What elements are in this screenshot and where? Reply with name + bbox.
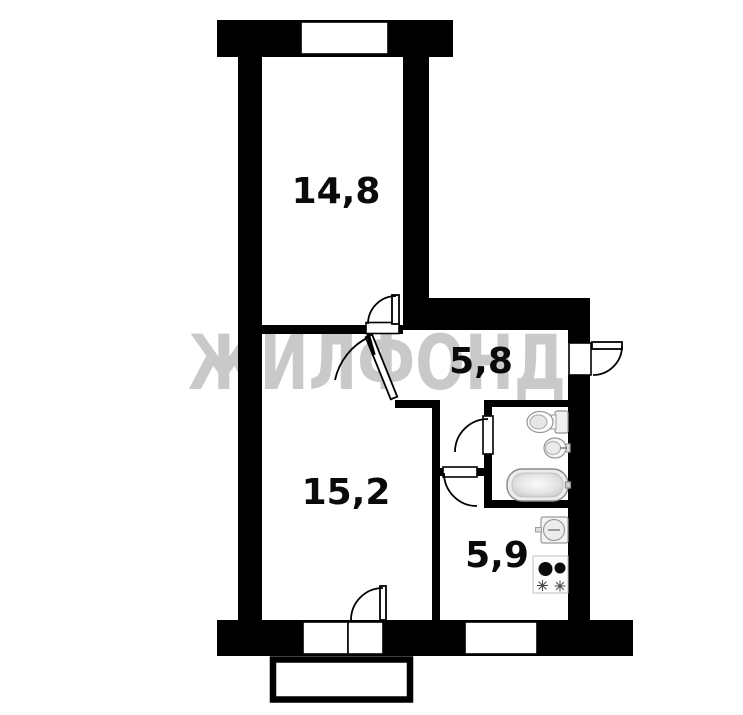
room-label-bedroom: 14,8 <box>292 171 381 212</box>
bedroom-door-leaf <box>392 295 399 324</box>
bedroom-window <box>301 22 388 54</box>
balcony-door-leaf <box>380 586 386 620</box>
balcony-outline <box>273 660 410 700</box>
kitchen-door-opening <box>443 467 477 477</box>
wall-bathroom-left-lower <box>484 453 492 500</box>
room-label-living: 15,2 <box>302 472 391 513</box>
toilet-icon <box>527 411 568 433</box>
entrance-door-leaf <box>592 342 622 349</box>
room-label-hall: 5,8 <box>449 341 513 382</box>
wall-bedroom-right <box>403 57 429 330</box>
bathroom-door-opening <box>483 416 493 454</box>
wall-right-above-entry <box>568 330 590 343</box>
burner-star <box>537 580 548 591</box>
wall-living-right <box>432 400 440 620</box>
burner-dot <box>555 563 566 574</box>
room-label-kitchen: 5,9 <box>465 535 529 576</box>
bathtub-icon <box>507 469 571 501</box>
wall-bathroom-top <box>484 400 568 407</box>
wall-bottom <box>217 620 633 656</box>
stove-icon <box>533 556 568 593</box>
burner-star <box>555 581 566 592</box>
burner-dot <box>539 562 553 576</box>
entrance-door-opening <box>569 343 591 375</box>
wall-left <box>238 57 262 620</box>
wall-right-main <box>568 375 590 620</box>
wall-hall-top <box>403 298 590 330</box>
floor-plan: ЖИЛФОНД <box>0 0 743 715</box>
kitchen-window <box>465 622 537 654</box>
balcony-window <box>303 622 348 654</box>
balcony-door-threshold <box>348 622 383 654</box>
